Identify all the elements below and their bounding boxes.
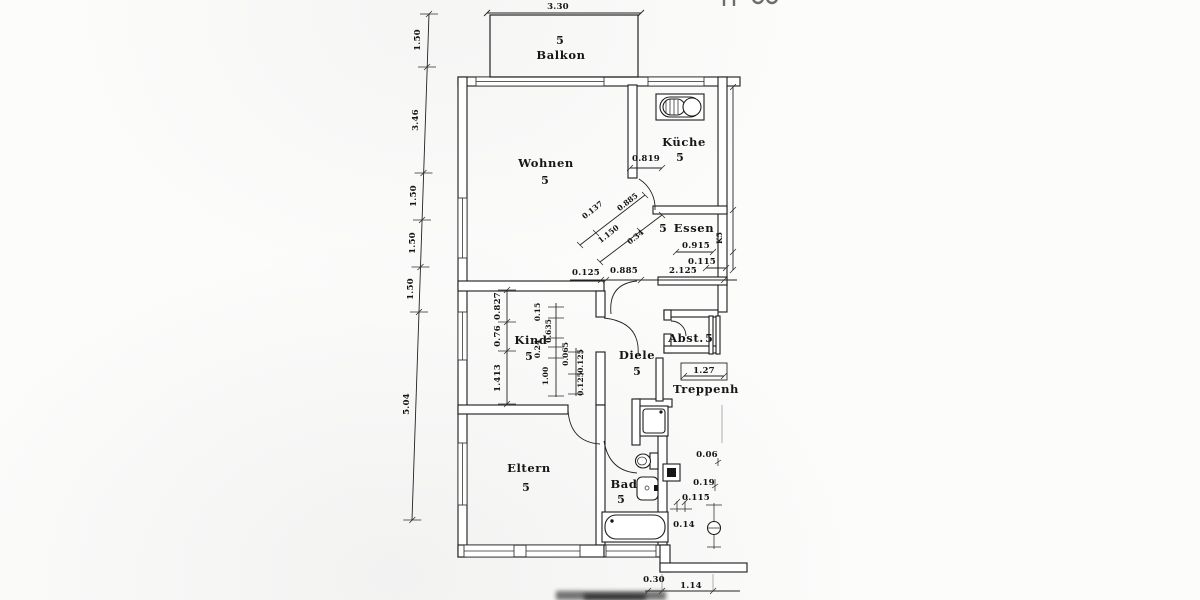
svg-text:2.125: 2.125	[669, 266, 697, 276]
svg-text:0.819: 0.819	[632, 154, 660, 164]
svg-text:0.885: 0.885	[610, 266, 638, 276]
svg-text:1.50: 1.50	[408, 232, 418, 254]
svg-text:1.150: 1.150	[596, 223, 620, 245]
essen-label: Essen	[674, 221, 714, 235]
svg-text:K5: K5	[715, 232, 724, 244]
eltern-label: Eltern	[507, 461, 551, 475]
cutoff-text-fragment	[724, 0, 777, 6]
balkon-label: Balkon	[536, 48, 585, 62]
abst-number: 5	[705, 332, 713, 345]
svg-text:0.635: 0.635	[544, 319, 553, 343]
svg-text:0.125: 0.125	[572, 268, 600, 278]
diele-label: Diele	[619, 348, 655, 362]
eltern-door-arc	[568, 410, 600, 444]
svg-text:1.50: 1.50	[409, 185, 419, 207]
svg-text:0.065: 0.065	[561, 342, 570, 366]
kind-number: 5	[525, 350, 533, 363]
svg-text:0.15: 0.15	[533, 303, 542, 322]
svg-text:1.50: 1.50	[413, 29, 423, 51]
wohnen-label: Wohnen	[517, 156, 574, 170]
wohnen-number: 5	[541, 174, 549, 187]
hall-upper-door-arc	[611, 281, 637, 314]
bathtub-icon	[602, 512, 668, 542]
bad-door-arc	[604, 441, 637, 473]
dim-treppe: 1.27	[681, 363, 727, 380]
dim-kueche-door: 0.819	[627, 154, 665, 171]
kitchen-sink-icon	[656, 94, 704, 120]
bad-label: Bad	[610, 477, 637, 491]
dimensions: 3.30 1.50 3.46 1.50 1.50 1.50 5.04	[402, 2, 740, 594]
survey-marker-icon	[706, 503, 722, 549]
svg-text:3.30: 3.30	[547, 2, 569, 12]
svg-text:0.827: 0.827	[493, 292, 503, 320]
eltern-number: 5	[522, 481, 530, 494]
shower-icon	[640, 406, 668, 436]
svg-text:0.125: 0.125	[576, 349, 585, 373]
svg-text:0.125: 0.125	[576, 372, 585, 396]
washbasin-icon	[637, 477, 658, 500]
svg-text:1.27: 1.27	[693, 366, 715, 376]
abst-label: Abst.	[667, 331, 704, 345]
svg-text:0.06: 0.06	[696, 450, 718, 460]
svg-text:3.46: 3.46	[411, 109, 421, 131]
svg-text:0.115: 0.115	[682, 493, 710, 503]
toilet-icon	[636, 453, 659, 469]
floor-plan-scan: 5 Balkon Wohnen 5 Küche 5 5 Essen Kind 5…	[0, 0, 1200, 600]
svg-text:0.115: 0.115	[688, 257, 716, 267]
shaft-icon	[663, 464, 680, 481]
svg-text:5.04: 5.04	[402, 393, 412, 415]
svg-text:1.00: 1.00	[541, 367, 550, 386]
svg-text:0.34: 0.34	[625, 228, 645, 246]
kitchen-door-arc	[639, 179, 655, 210]
svg-text:1.413: 1.413	[493, 364, 503, 392]
balcony-outline	[490, 15, 638, 77]
dim-diagonal-group: 0.137 0.885 1.150 0.34	[577, 191, 665, 265]
floor-plan-drawing: 5 Balkon Wohnen 5 Küche 5 5 Essen Kind 5…	[0, 0, 1200, 600]
svg-text:0.14: 0.14	[673, 520, 695, 530]
svg-text:1.14: 1.14	[680, 581, 702, 591]
dim-right-line	[730, 84, 736, 273]
svg-text:0.915: 0.915	[682, 241, 710, 251]
balkon-number: 5	[556, 34, 564, 47]
diele-number: 5	[633, 365, 641, 378]
kueche-number: 5	[676, 151, 684, 164]
svg-text:0.24: 0.24	[533, 340, 542, 359]
svg-text:0.137: 0.137	[580, 199, 604, 221]
dim-kind-left: 0.827 0.76 1.413	[493, 287, 516, 407]
dim-left-chain: 1.50 3.46 1.50 1.50 1.50 5.04	[402, 11, 438, 523]
scan-smudge	[556, 591, 666, 600]
dim-balkon-width: 3.30	[484, 2, 644, 16]
kueche-label: Küche	[662, 135, 706, 149]
dim-kind-middle: 0.15 0.635 0.24 0.065 1.00 0.125 0.125	[533, 303, 585, 397]
dim-entry-right: 0.06 0.19 0.115 0.14	[670, 450, 721, 530]
svg-text:0.30: 0.30	[643, 575, 665, 585]
kind-label: Kind	[514, 333, 547, 347]
svg-text:0.76: 0.76	[493, 325, 503, 347]
bad-number: 5	[617, 493, 625, 506]
svg-text:0.19: 0.19	[693, 478, 715, 488]
essen-number: 5	[659, 222, 667, 235]
svg-text:1.50: 1.50	[406, 278, 416, 300]
treppenhaus-label: Treppenh	[673, 382, 739, 396]
